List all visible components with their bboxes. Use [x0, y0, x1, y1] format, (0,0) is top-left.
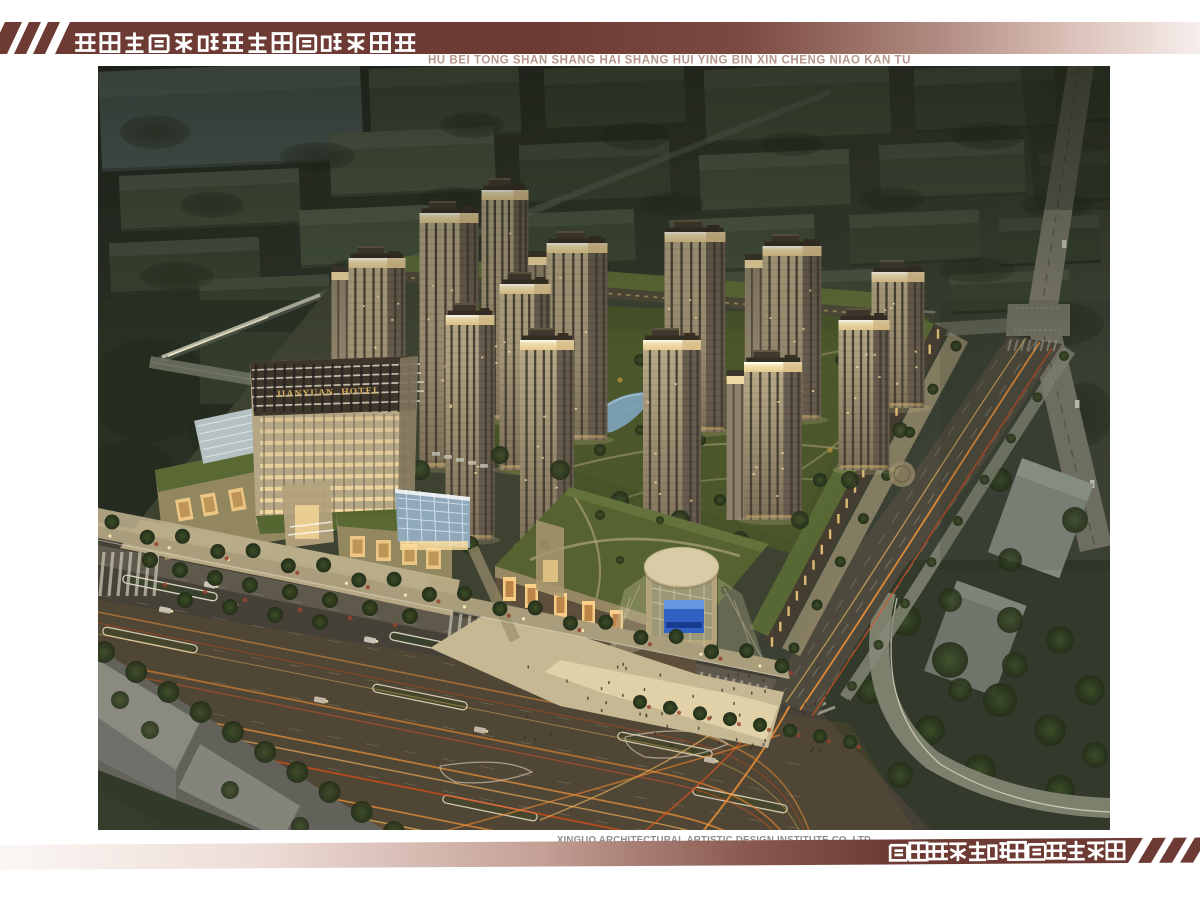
svg-text:HU BEI TONG SHAN SHANG HAI SHA: HU BEI TONG SHAN SHANG HAI SHANG HUI YIN…	[428, 55, 911, 67]
